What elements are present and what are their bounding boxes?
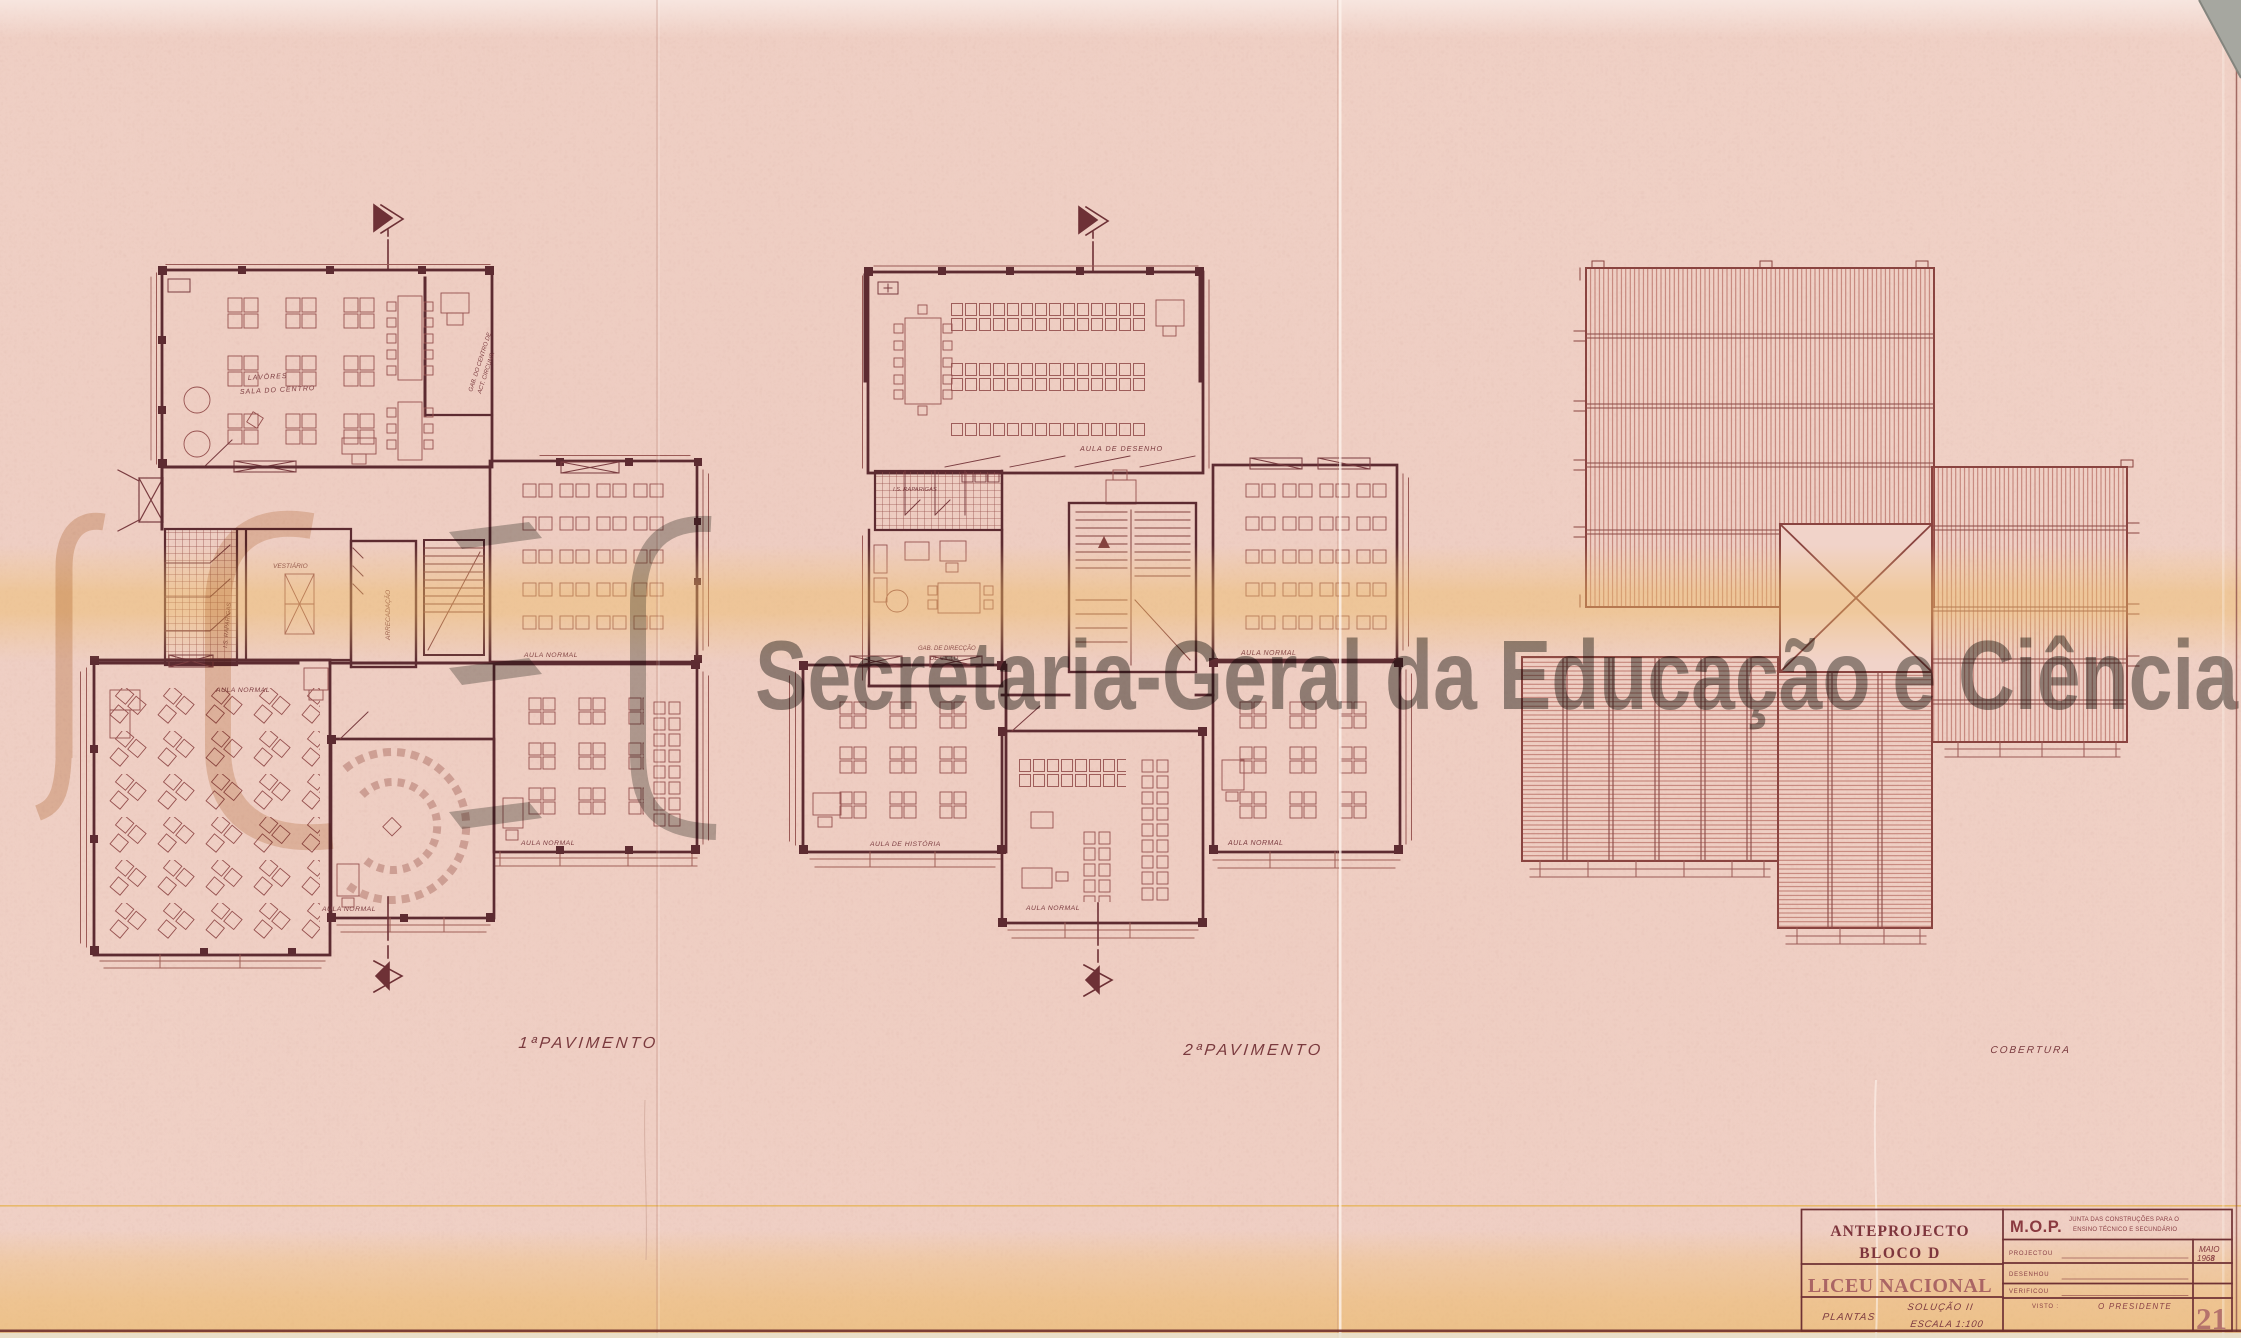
svg-text:AULA NORMAL: AULA NORMAL <box>1025 905 1080 912</box>
svg-text:MAIO: MAIO <box>2199 1245 2219 1254</box>
svg-text:PROJECTOU: PROJECTOU <box>2009 1251 2053 1257</box>
svg-text:Secretaria-Geral da Educação e: Secretaria-Geral da Educação e Ciência <box>755 620 2239 730</box>
svg-text:BLOCO D: BLOCO D <box>1859 1245 1941 1262</box>
svg-text:VISTO :: VISTO : <box>2032 1304 2059 1310</box>
svg-text:AULA NORMAL: AULA NORMAL <box>1227 840 1283 847</box>
svg-text:1ªPAVIMENTO: 1ªPAVIMENTO <box>518 1034 660 1052</box>
svg-text:ESCALA 1:100: ESCALA 1:100 <box>1910 1319 1985 1330</box>
svg-text:VERIFICOU: VERIFICOU <box>2009 1289 2049 1295</box>
svg-text:COBERTURA: COBERTURA <box>1990 1045 2072 1056</box>
svg-text:SOLUÇÃO II: SOLUÇÃO II <box>1907 1302 1975 1313</box>
svg-text:AULA NORMAL: AULA NORMAL <box>321 906 376 913</box>
svg-text:2ªPAVIMENTO: 2ªPAVIMENTO <box>1182 1041 1324 1059</box>
svg-text:ENSINO TÉCNICO E SECUNDÁ: ENSINO TÉCNICO E SECUNDÁRIO <box>2073 1226 2177 1233</box>
svg-text:I.S. RAPARIGAS: I.S. RAPARIGAS <box>893 487 937 493</box>
svg-text:ANTEPROJECTO: ANTEPROJECTO <box>1830 1223 1969 1240</box>
svg-text:AULA NORMAL: AULA NORMAL <box>520 840 575 847</box>
svg-text:LICEU NACIONAL: LICEU NACIONAL <box>1808 1275 1992 1297</box>
svg-text:M.O.P.: M.O.P. <box>2010 1218 2062 1236</box>
svg-text:O PRESIDENTE: O PRESIDENTE <box>2098 1302 2172 1311</box>
svg-text:DESENHOU: DESENHOU <box>2009 1272 2049 1278</box>
svg-text:1968: 1968 <box>2197 1254 2215 1263</box>
svg-text:AULA DE DESENHO: AULA DE DESENHO <box>1079 444 1163 453</box>
svg-text:JUNTA DAS CONSTRUÇÕES PARA: JUNTA DAS CONSTRUÇÕES PARA O <box>2069 1216 2179 1223</box>
svg-text:AULA DE HISTÓRIA: AULA DE HISTÓRIA <box>869 839 941 848</box>
svg-text:PLANTAS: PLANTAS <box>1822 1312 1877 1323</box>
